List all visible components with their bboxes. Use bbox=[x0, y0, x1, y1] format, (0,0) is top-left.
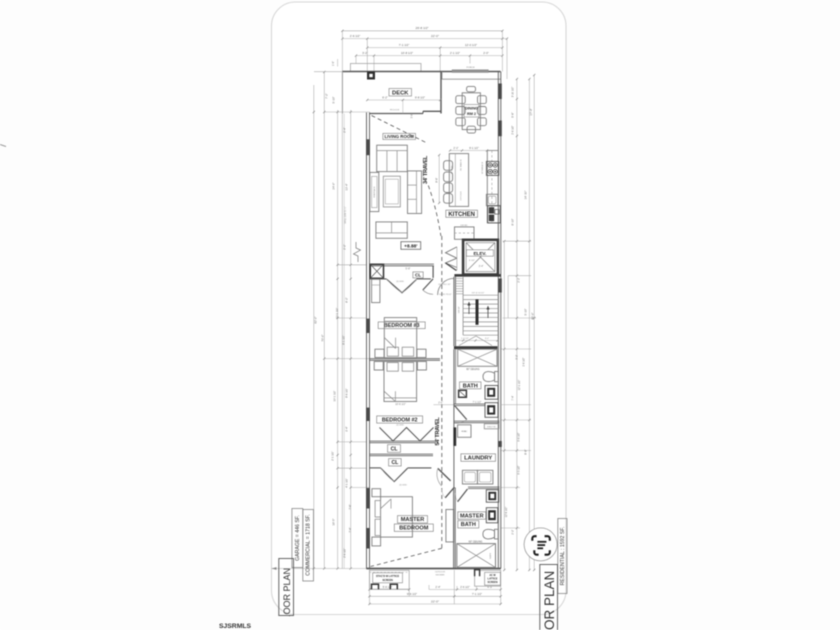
svg-text:7'-4": 7'-4" bbox=[511, 395, 515, 400]
svg-text:BATH: BATH bbox=[461, 522, 476, 528]
svg-text:KITCHEN: KITCHEN bbox=[448, 212, 475, 218]
svg-text:SCREEN: SCREEN bbox=[382, 579, 393, 582]
svg-text:1'-6": 1'-6" bbox=[332, 61, 335, 66]
svg-text:2'-6 1/2": 2'-6 1/2" bbox=[343, 548, 347, 558]
svg-text:3'-6": 3'-6" bbox=[411, 113, 414, 118]
svg-text:60" CEILING: 60" CEILING bbox=[469, 540, 483, 543]
svg-text:2'-6 1/2": 2'-6 1/2" bbox=[460, 585, 470, 589]
svg-text:7'-1 1/2": 7'-1 1/2" bbox=[472, 592, 482, 596]
svg-text:CL: CL bbox=[391, 446, 399, 452]
svg-text:3'-4": 3'-4" bbox=[345, 426, 349, 431]
svg-text:ISL TABLE W: ISL TABLE W bbox=[460, 159, 463, 171]
svg-text:7'-4": 7'-4" bbox=[348, 527, 352, 532]
svg-text:OR PLAN: OR PLAN bbox=[542, 571, 557, 630]
svg-text:RESIDENTIAL : 1592 SF.: RESIDENTIAL : 1592 SF. bbox=[560, 527, 566, 586]
svg-text:7'-6": 7'-6" bbox=[348, 504, 352, 509]
svg-text:12'-1 1/2": 12'-1 1/2" bbox=[518, 380, 521, 391]
svg-text:5'-6": 5'-6" bbox=[406, 267, 411, 270]
svg-text:22'-0": 22'-0" bbox=[431, 34, 439, 38]
svg-text:5'-10": 5'-10" bbox=[332, 97, 336, 104]
svg-text:7'-1 1/2": 7'-1 1/2" bbox=[473, 401, 482, 404]
svg-text:2'-4": 2'-4" bbox=[435, 585, 440, 589]
svg-text:5' 1/2": 5' 1/2" bbox=[469, 260, 475, 262]
svg-text:12'-0 1/2": 12'-0 1/2" bbox=[465, 43, 477, 47]
svg-text:1'-6 1/2": 1'-6 1/2" bbox=[523, 357, 526, 366]
svg-text:16R UP: 16R UP bbox=[459, 306, 461, 314]
svg-text:1'-6 1/2": 1'-6 1/2" bbox=[461, 338, 469, 340]
svg-text:82'-6": 82'-6" bbox=[531, 312, 535, 319]
svg-text:BATH: BATH bbox=[463, 383, 478, 389]
svg-text:HVAC: HVAC bbox=[461, 430, 467, 433]
svg-text:+8.88': +8.88' bbox=[404, 244, 417, 250]
svg-text:2'-2": 2'-2" bbox=[511, 529, 515, 534]
svg-text:5'-6": 5'-6" bbox=[511, 112, 515, 117]
svg-text:FIREPLACE: FIREPLACE bbox=[373, 186, 376, 198]
svg-text:5'-10": 5'-10" bbox=[524, 309, 528, 316]
svg-text:(2) 6030: (2) 6030 bbox=[396, 425, 404, 427]
svg-text:12'-6 1/2": 12'-6 1/2" bbox=[505, 507, 508, 518]
svg-text:PR DOOR: PR DOOR bbox=[390, 110, 400, 112]
svg-text:10'-1 1/2": 10'-1 1/2" bbox=[333, 390, 337, 401]
svg-text:DOOR 7'8 1/2": DOOR 7'8 1/2" bbox=[439, 294, 452, 296]
svg-text:RM 2: RM 2 bbox=[467, 112, 476, 116]
svg-text:2'-4": 2'-4" bbox=[343, 127, 347, 132]
svg-text:10'-6 1/2": 10'-6 1/2" bbox=[395, 403, 406, 406]
svg-text:5'-6 1/2": 5'-6 1/2" bbox=[518, 432, 521, 441]
svg-text:4'-1 1/2": 4'-1 1/2" bbox=[345, 478, 349, 488]
svg-text:2'-6 1/2": 2'-6 1/2" bbox=[350, 34, 361, 38]
svg-text:.OOR PLAN: .OOR PLAN bbox=[282, 568, 292, 617]
svg-text:BEDROOM #3: BEDROOM #3 bbox=[384, 323, 420, 329]
svg-text:9'-8 1/2": 9'-8 1/2" bbox=[415, 95, 425, 99]
svg-text:STAC'D W LATTICE: STAC'D W LATTICE bbox=[376, 575, 399, 578]
svg-text:3'-10 1/2": 3'-10 1/2" bbox=[512, 87, 515, 98]
svg-text:WALL DIM 50'-0": WALL DIM 50'-0" bbox=[344, 206, 347, 224]
svg-text:2'-1": 2'-1" bbox=[453, 146, 458, 150]
svg-text:4'-5": 4'-5" bbox=[487, 585, 492, 589]
svg-text:GARAGE = 446 SF.: GARAGE = 446 SF. bbox=[295, 515, 301, 561]
svg-text:17'-4": 17'-4" bbox=[529, 108, 533, 115]
svg-text:MASTER: MASTER bbox=[401, 517, 425, 523]
svg-text:60" CEILING: 60" CEILING bbox=[466, 369, 479, 371]
svg-text:3'-2": 3'-2" bbox=[362, 51, 368, 55]
svg-text:8'-10": 8'-10" bbox=[511, 219, 515, 226]
svg-text:6'-2": 6'-2" bbox=[382, 95, 388, 99]
svg-text:CL: CL bbox=[391, 460, 399, 466]
svg-text:34' TRAVEL: 34' TRAVEL bbox=[423, 155, 429, 184]
svg-text:GLASS: GLASS bbox=[489, 552, 492, 559]
svg-text:24' OPN 1 1/2": 24' OPN 1 1/2" bbox=[438, 284, 451, 286]
svg-text:3'-2": 3'-2" bbox=[515, 354, 519, 359]
svg-text:10'-8 1/2": 10'-8 1/2" bbox=[401, 51, 413, 55]
svg-text:14'-10": 14'-10" bbox=[524, 191, 528, 200]
svg-text:ELEV.: ELEV. bbox=[473, 251, 486, 256]
svg-text:8'-6 1/2": 8'-6 1/2" bbox=[345, 388, 349, 398]
svg-text:82'-6": 82'-6" bbox=[314, 316, 318, 323]
svg-text:11'-1 1/2": 11'-1 1/2" bbox=[335, 308, 339, 319]
svg-text:2'-4": 2'-4" bbox=[438, 402, 443, 404]
svg-text:2'-6 1/2": 2'-6 1/2" bbox=[512, 125, 515, 134]
svg-text:(2) 6030: (2) 6030 bbox=[399, 485, 407, 487]
svg-text:30" RANGE W: 30" RANGE W bbox=[481, 162, 484, 175]
svg-text:7'-1 1/2": 7'-1 1/2" bbox=[399, 43, 410, 47]
svg-text:CL: CL bbox=[415, 273, 421, 278]
svg-text:2'-0": 2'-0" bbox=[483, 51, 489, 55]
svg-text:2'-2": 2'-2" bbox=[517, 277, 521, 282]
svg-text:BEDROOM #2: BEDROOM #2 bbox=[382, 417, 418, 423]
svg-text:2'-2": 2'-2" bbox=[343, 244, 347, 249]
svg-text:3 STOOLS: 3 STOOLS bbox=[461, 191, 463, 201]
svg-text:SCREEN: SCREEN bbox=[488, 581, 498, 584]
svg-text:8'-6": 8'-6" bbox=[434, 177, 438, 182]
svg-text:9'-6 1/2": 9'-6 1/2" bbox=[407, 592, 417, 596]
svg-text:8'-2": 8'-2" bbox=[345, 297, 349, 302]
svg-text:9'-1 1/2": 9'-1 1/2" bbox=[342, 335, 346, 345]
svg-text:SHELF RD: SHELF RD bbox=[487, 427, 497, 429]
svg-text:DW WD: DW WD bbox=[460, 225, 468, 227]
svg-text:76'-6": 76'-6" bbox=[321, 334, 325, 341]
svg-text:5'-5 1/2": 5'-5 1/2" bbox=[518, 465, 521, 474]
svg-text:24'-6": 24'-6" bbox=[332, 182, 336, 189]
svg-text:COMMERCIAL = 1718 SF.: COMMERCIAL = 1718 SF. bbox=[306, 514, 312, 575]
svg-text:13'-4": 13'-4" bbox=[345, 183, 349, 190]
svg-text:MASTER: MASTER bbox=[460, 513, 484, 519]
svg-text:15T @ 10 1/2": 15T @ 10 1/2" bbox=[472, 293, 485, 295]
svg-text:SHOWER: SHOWER bbox=[436, 574, 446, 576]
svg-text:DINING: DINING bbox=[465, 107, 478, 111]
svg-text:BEDROOM: BEDROOM bbox=[399, 526, 429, 532]
svg-text:7'-2": 7'-2" bbox=[325, 93, 329, 98]
svg-text:2'-1 1/2": 2'-1 1/2" bbox=[450, 51, 460, 55]
svg-text:LAUNDRY: LAUNDRY bbox=[464, 456, 492, 462]
svg-text:OUTDOOR: OUTDOOR bbox=[435, 572, 446, 574]
svg-text:9'-1 1/2": 9'-1 1/2" bbox=[469, 146, 479, 150]
svg-text:DECK: DECK bbox=[392, 90, 409, 96]
svg-text:18'-5": 18'-5" bbox=[332, 518, 336, 525]
svg-text:(2) 6030: (2) 6030 bbox=[396, 281, 404, 283]
svg-text:2'-1 1/2": 2'-1 1/2" bbox=[331, 451, 335, 461]
svg-text:PORCH: PORCH bbox=[467, 67, 475, 69]
svg-text:22'-0": 22'-0" bbox=[431, 600, 439, 604]
svg-text:26'-8 1/2": 26'-8 1/2" bbox=[415, 26, 428, 30]
svg-text:3'-0": 3'-0" bbox=[485, 338, 490, 340]
svg-text:SJSRMLS: SJSRMLS bbox=[219, 623, 252, 630]
svg-text:3'-4": 3'-4" bbox=[479, 265, 484, 268]
svg-text:9'-6": 9'-6" bbox=[524, 449, 528, 454]
